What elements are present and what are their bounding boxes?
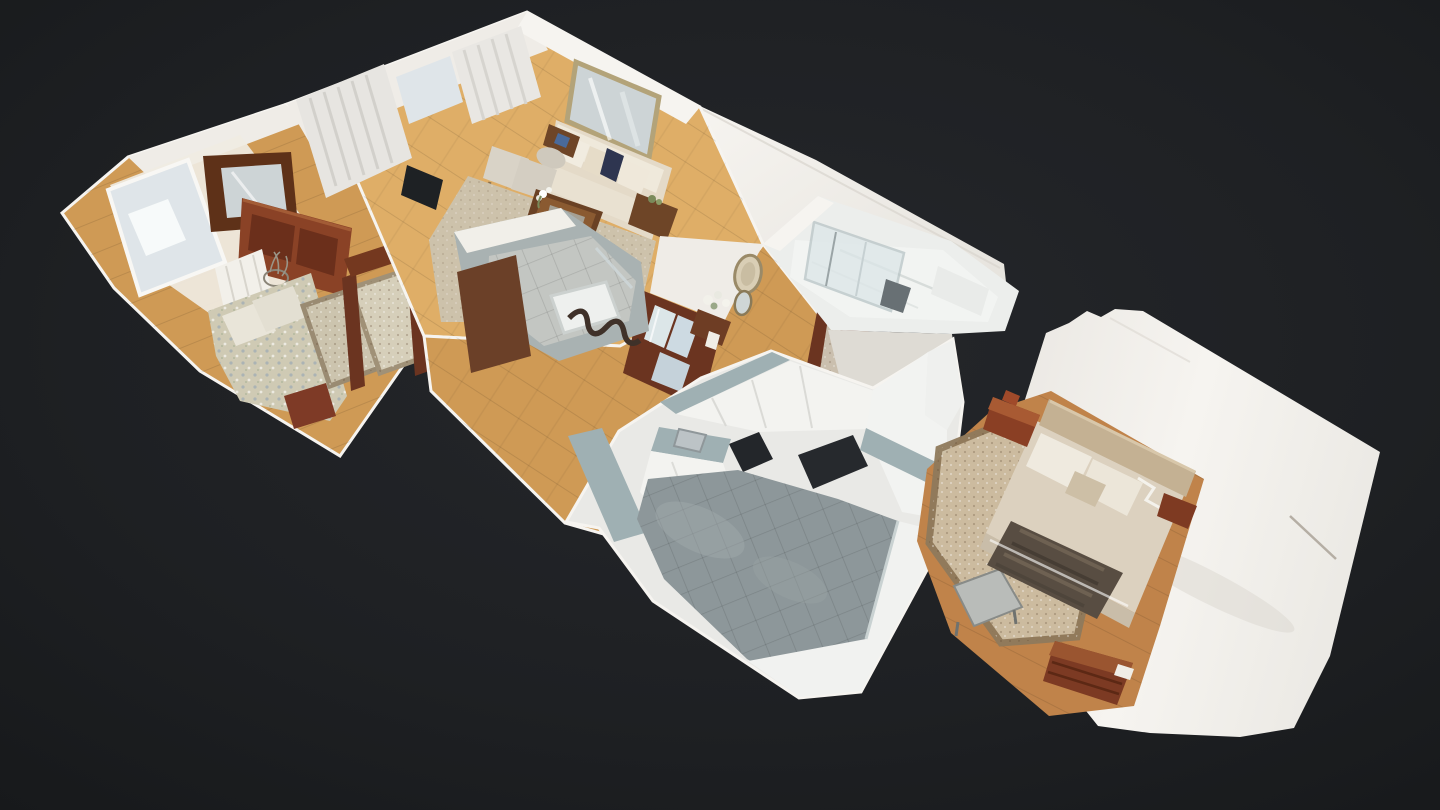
dollhouse-viewport[interactable] bbox=[0, 0, 1440, 810]
dollhouse-model[interactable] bbox=[0, 0, 1440, 810]
